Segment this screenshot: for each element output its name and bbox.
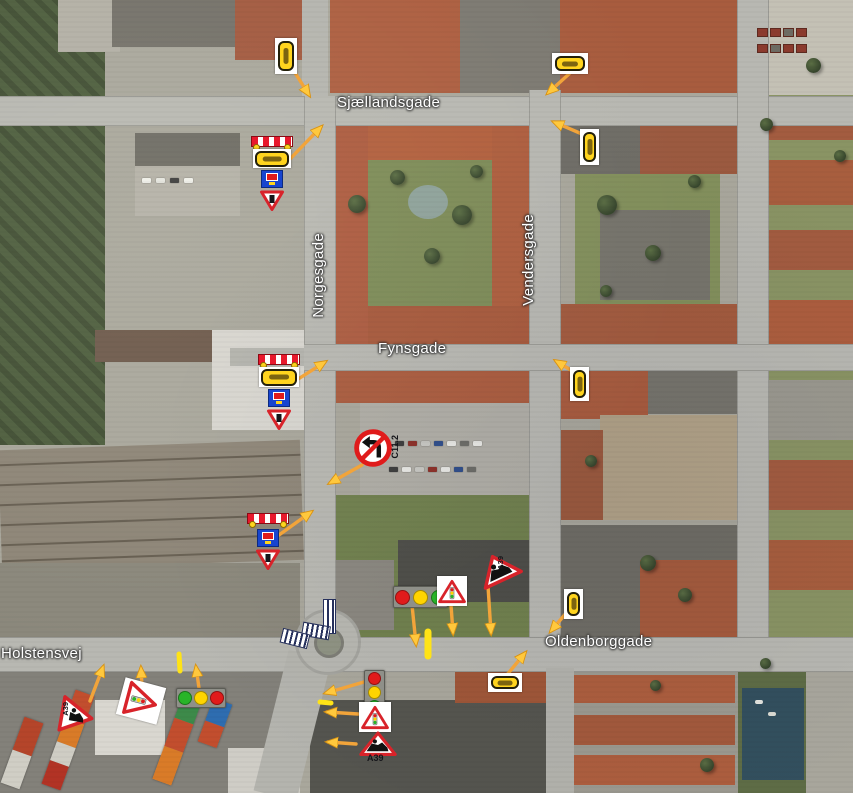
tree [806,58,821,73]
quay-pavement [806,668,853,793]
building-block [767,160,853,205]
sign-code-label: C11.2 [391,435,400,459]
tree [760,658,771,669]
red-light [395,590,410,605]
give-way-triangle-icon [266,409,292,430]
street-label-sjaellandsgade: Sjællandsgade [337,95,440,110]
building-block [235,0,310,60]
yellow-light [368,686,381,699]
car [473,441,482,446]
building-block [565,675,735,703]
building-block [558,430,603,520]
tree [650,680,661,691]
marker-plate-icon[interactable] [552,53,588,74]
car [467,467,476,472]
market-stall [783,28,794,37]
building-block [648,369,738,414]
sign-code-label: A39 [62,702,70,716]
sign-code-label: A39 [367,754,384,763]
tree [585,455,597,467]
roadworks-triangle-icon[interactable] [53,693,100,744]
sign-code-label: A39 [497,556,505,570]
building-block [640,124,738,174]
barrier-board-icon [258,354,300,365]
yellow-light [194,691,208,705]
direction-arrow [326,682,364,693]
marker-plate-icon[interactable] [275,38,297,74]
signal-ahead-triangle-icon[interactable] [359,702,391,732]
red-light [210,691,224,705]
forest-area [0,0,105,445]
parking-lot [58,0,120,52]
tree [424,248,440,264]
building-block [767,540,853,590]
building-block [135,133,240,166]
tree [600,285,612,297]
roadwork-sign-stack[interactable] [247,513,289,570]
barrier-board-icon [247,513,289,524]
market-stall [757,44,768,53]
building-block [767,230,853,270]
marker-plate-icon [259,367,299,387]
marker-plate-icon[interactable] [564,589,583,619]
building-block [560,0,737,93]
tree [678,588,692,602]
street-label-fynsgade: Fynsgade [378,341,446,356]
detour-blue-sign-icon [261,170,283,188]
car [184,178,193,183]
street-label-holstensvej: Holstensvej [1,646,82,661]
boat [768,712,776,716]
market-stall [770,44,781,53]
road-oldenborggade [0,637,853,672]
yellow-light [413,590,428,605]
market-stall [757,28,768,37]
street-label-vendersgade: Vendersgade [521,214,536,306]
tree [688,175,701,188]
parking-lot [135,166,240,216]
building-block [95,330,215,362]
car [428,467,437,472]
tree [700,758,714,772]
tree [452,205,472,225]
building-block [310,700,560,793]
tree [645,245,661,261]
no-left-turn-icon[interactable] [354,429,392,472]
building-block [334,124,368,344]
building-block [460,0,560,93]
tree [348,195,366,213]
building-block [767,300,853,345]
street-label-oldenborggade: Oldenborggade [545,634,652,649]
green-light [178,691,192,705]
boat [755,700,763,704]
market-stall [770,28,781,37]
car [142,178,151,183]
car [454,467,463,472]
roadwork-sign-stack[interactable] [258,354,300,430]
tree [597,195,617,215]
marker-plate-icon [253,149,291,168]
road-east [737,0,769,640]
detour-blue-sign-icon [257,529,279,547]
harbor-water [742,688,804,780]
marker-plate-icon[interactable] [488,673,522,692]
car [402,467,411,472]
market-stall [783,44,794,53]
traffic-light-icon[interactable] [176,688,226,708]
car [434,441,443,446]
building-block [558,304,738,344]
barrier-board-icon [251,136,293,147]
map-canvas[interactable]: Sjællandsgade Norgesgade Vendersgade Fyn… [0,0,853,793]
give-way-triangle-icon [259,190,285,211]
roadwork-sign-stack[interactable] [251,136,293,211]
gravel-yard [600,415,738,520]
car [415,467,424,472]
tree [834,150,846,162]
car [447,441,456,446]
detour-blue-sign-icon [268,389,290,407]
road-vendersgade-south [546,668,574,793]
road-norgesgade-north [302,0,328,96]
marker-plate-icon[interactable] [570,367,589,401]
market-stall [796,44,807,53]
building-block [565,715,735,745]
street-label-norgesgade: Norgesgade [311,233,326,318]
red-light [368,672,381,685]
car [156,178,165,183]
building-block [112,0,235,47]
building-block [330,0,460,93]
tree [760,118,773,131]
marker-plate-icon[interactable] [580,129,599,165]
tree [470,165,483,178]
car [421,441,430,446]
courtyard-garden [368,160,492,306]
building-block [767,460,853,510]
give-way-triangle-icon [255,549,281,570]
tree [390,170,405,185]
car [408,441,417,446]
car [170,178,179,183]
signal-ahead-triangle-icon[interactable] [437,576,467,606]
tree [640,555,656,571]
building-block [767,380,853,440]
car [441,467,450,472]
building-block [334,369,530,403]
pond [408,185,448,219]
market-stall [796,28,807,37]
car [460,441,469,446]
